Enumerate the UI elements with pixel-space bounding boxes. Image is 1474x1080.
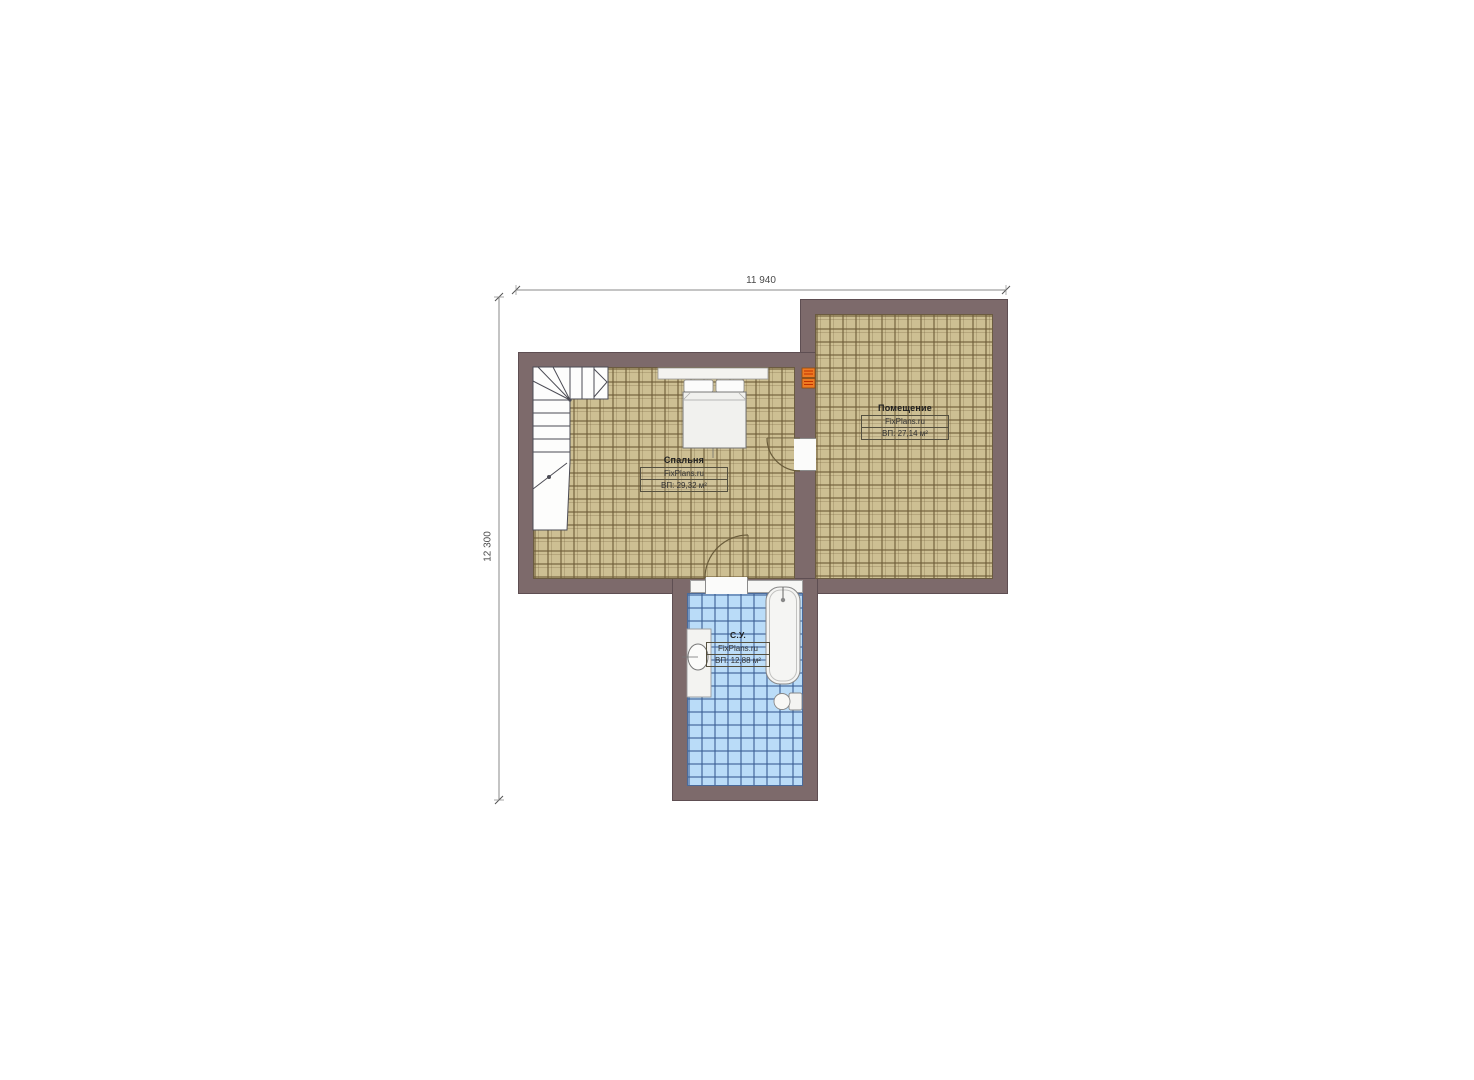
- bed: [658, 368, 768, 458]
- main-room-label-box: FixPlans.ru ВП: 27,14 м²: [861, 415, 949, 440]
- radiator-icon: [802, 368, 815, 388]
- toilet: [774, 693, 802, 710]
- main-room-watermark: FixPlans.ru: [862, 416, 948, 428]
- main-room-area: ВП: 27,14 м²: [862, 428, 948, 439]
- bedroom-name: Спальня: [636, 455, 732, 465]
- room-label-bathroom: С.У. FixPlans.ru ВП: 12,88 м²: [706, 630, 770, 667]
- staircase: [533, 367, 608, 530]
- bathroom-area: ВП: 12,88 м²: [707, 655, 769, 666]
- room-label-main: Помещение FixPlans.ru ВП: 27,14 м²: [853, 403, 957, 440]
- bedroom-label-box: FixPlans.ru ВП: 29,32 м²: [640, 467, 728, 492]
- bathroom-label-box: FixPlans.ru ВП: 12,88 м²: [706, 642, 770, 667]
- bedroom-watermark: FixPlans.ru: [641, 468, 727, 480]
- bedroom-area: ВП: 29,32 м²: [641, 480, 727, 491]
- door-swing-main-room: [767, 438, 800, 471]
- main-room-name: Помещение: [853, 403, 957, 413]
- dimension-width-label: 11 940: [711, 275, 811, 286]
- bathtub: [766, 587, 800, 684]
- plan-fixtures-layer: [0, 0, 1474, 1080]
- dimension-height-label: 12 300: [483, 517, 494, 577]
- door-swing-bathroom: [705, 535, 748, 578]
- room-label-bedroom: Спальня FixPlans.ru ВП: 29,32 м²: [636, 455, 732, 492]
- dimension-lines: [494, 285, 1010, 804]
- floor-plan-canvas: 11 940 12 300 Спальня FixPlans.ru ВП: 29…: [0, 0, 1474, 1080]
- bathroom-name: С.У.: [706, 630, 770, 640]
- bathroom-watermark: FixPlans.ru: [707, 643, 769, 655]
